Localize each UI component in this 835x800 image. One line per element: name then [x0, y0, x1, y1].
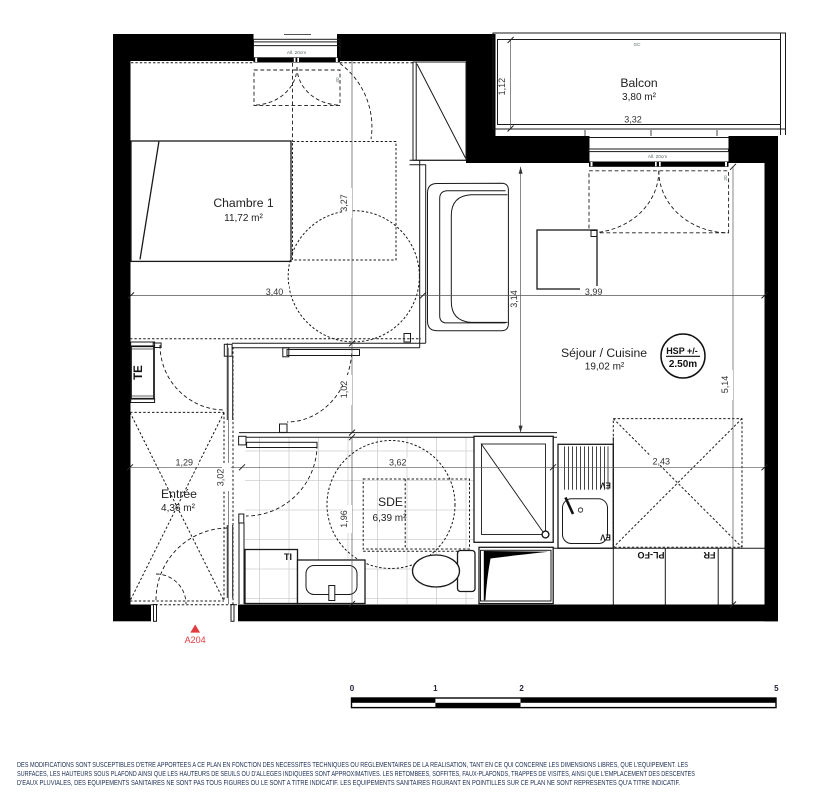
svg-text:TE: TE — [133, 365, 145, 380]
svg-text:1,02: 1,02 — [339, 381, 349, 399]
svg-text:5: 5 — [774, 684, 779, 693]
svg-text:2: 2 — [519, 684, 524, 693]
svg-text:2,43: 2,43 — [653, 457, 671, 467]
svg-text:1,29: 1,29 — [176, 458, 194, 468]
svg-text:HSP +/-: HSP +/- — [666, 346, 698, 356]
svg-text:SDE: SDE — [378, 495, 403, 509]
svg-text:1,96: 1,96 — [339, 510, 349, 528]
svg-text:3,40: 3,40 — [266, 287, 284, 297]
svg-text:3,02: 3,02 — [216, 469, 226, 487]
svg-text:4,36 m²: 4,36 m² — [161, 503, 196, 514]
svg-text:A204: A204 — [185, 635, 206, 645]
svg-text:Chambre 1: Chambre 1 — [213, 196, 274, 210]
svg-text:GC: GC — [633, 42, 641, 47]
svg-text:Séjour / Cuisine: Séjour / Cuisine — [561, 346, 647, 360]
svg-text:20: 20 — [723, 175, 728, 181]
svg-text:3,32: 3,32 — [624, 115, 642, 125]
svg-text:3,14: 3,14 — [509, 290, 519, 308]
svg-text:3,27: 3,27 — [339, 194, 349, 212]
svg-text:3,99: 3,99 — [585, 287, 603, 297]
svg-text:1: 1 — [433, 684, 438, 693]
svg-text:1,12: 1,12 — [497, 78, 507, 96]
svg-text:11,72 m²: 11,72 m² — [224, 213, 263, 224]
svg-text:19,02 m²: 19,02 m² — [585, 362, 625, 373]
svg-text:3,62: 3,62 — [389, 458, 407, 468]
svg-text:PL-FO: PL-FO — [638, 550, 665, 560]
svg-text:5,14: 5,14 — [720, 376, 730, 394]
svg-text:D'EAUX PLUVIALES, DES EQUIPEME: D'EAUX PLUVIALES, DES EQUIPEMENTS SANITA… — [17, 780, 680, 787]
svg-text:3,80 m²: 3,80 m² — [622, 92, 657, 103]
svg-text:20: 20 — [335, 77, 340, 83]
svg-text:All. 20cm: All. 20cm — [287, 50, 306, 55]
svg-text:EV: EV — [600, 481, 611, 490]
svg-text:2.50m: 2.50m — [669, 359, 697, 370]
svg-text:Entrée: Entrée — [161, 487, 197, 501]
svg-text:All. 20cm: All. 20cm — [648, 154, 667, 159]
svg-text:6,39 m²: 6,39 m² — [373, 513, 408, 524]
svg-text:Balcon: Balcon — [620, 76, 657, 90]
svg-text:EV: EV — [600, 533, 611, 542]
svg-text:TI: TI — [284, 552, 292, 562]
svg-text:DES MODIFICATIONS SONT SUSCEPT: DES MODIFICATIONS SONT SUSCEPTIBLES D'ET… — [17, 762, 688, 769]
svg-text:0: 0 — [350, 684, 355, 693]
svg-text:SURFACES, LES HAUTEURS SOUS PL: SURFACES, LES HAUTEURS SOUS PLAFOND AINS… — [17, 771, 695, 778]
svg-text:FR: FR — [703, 550, 715, 560]
